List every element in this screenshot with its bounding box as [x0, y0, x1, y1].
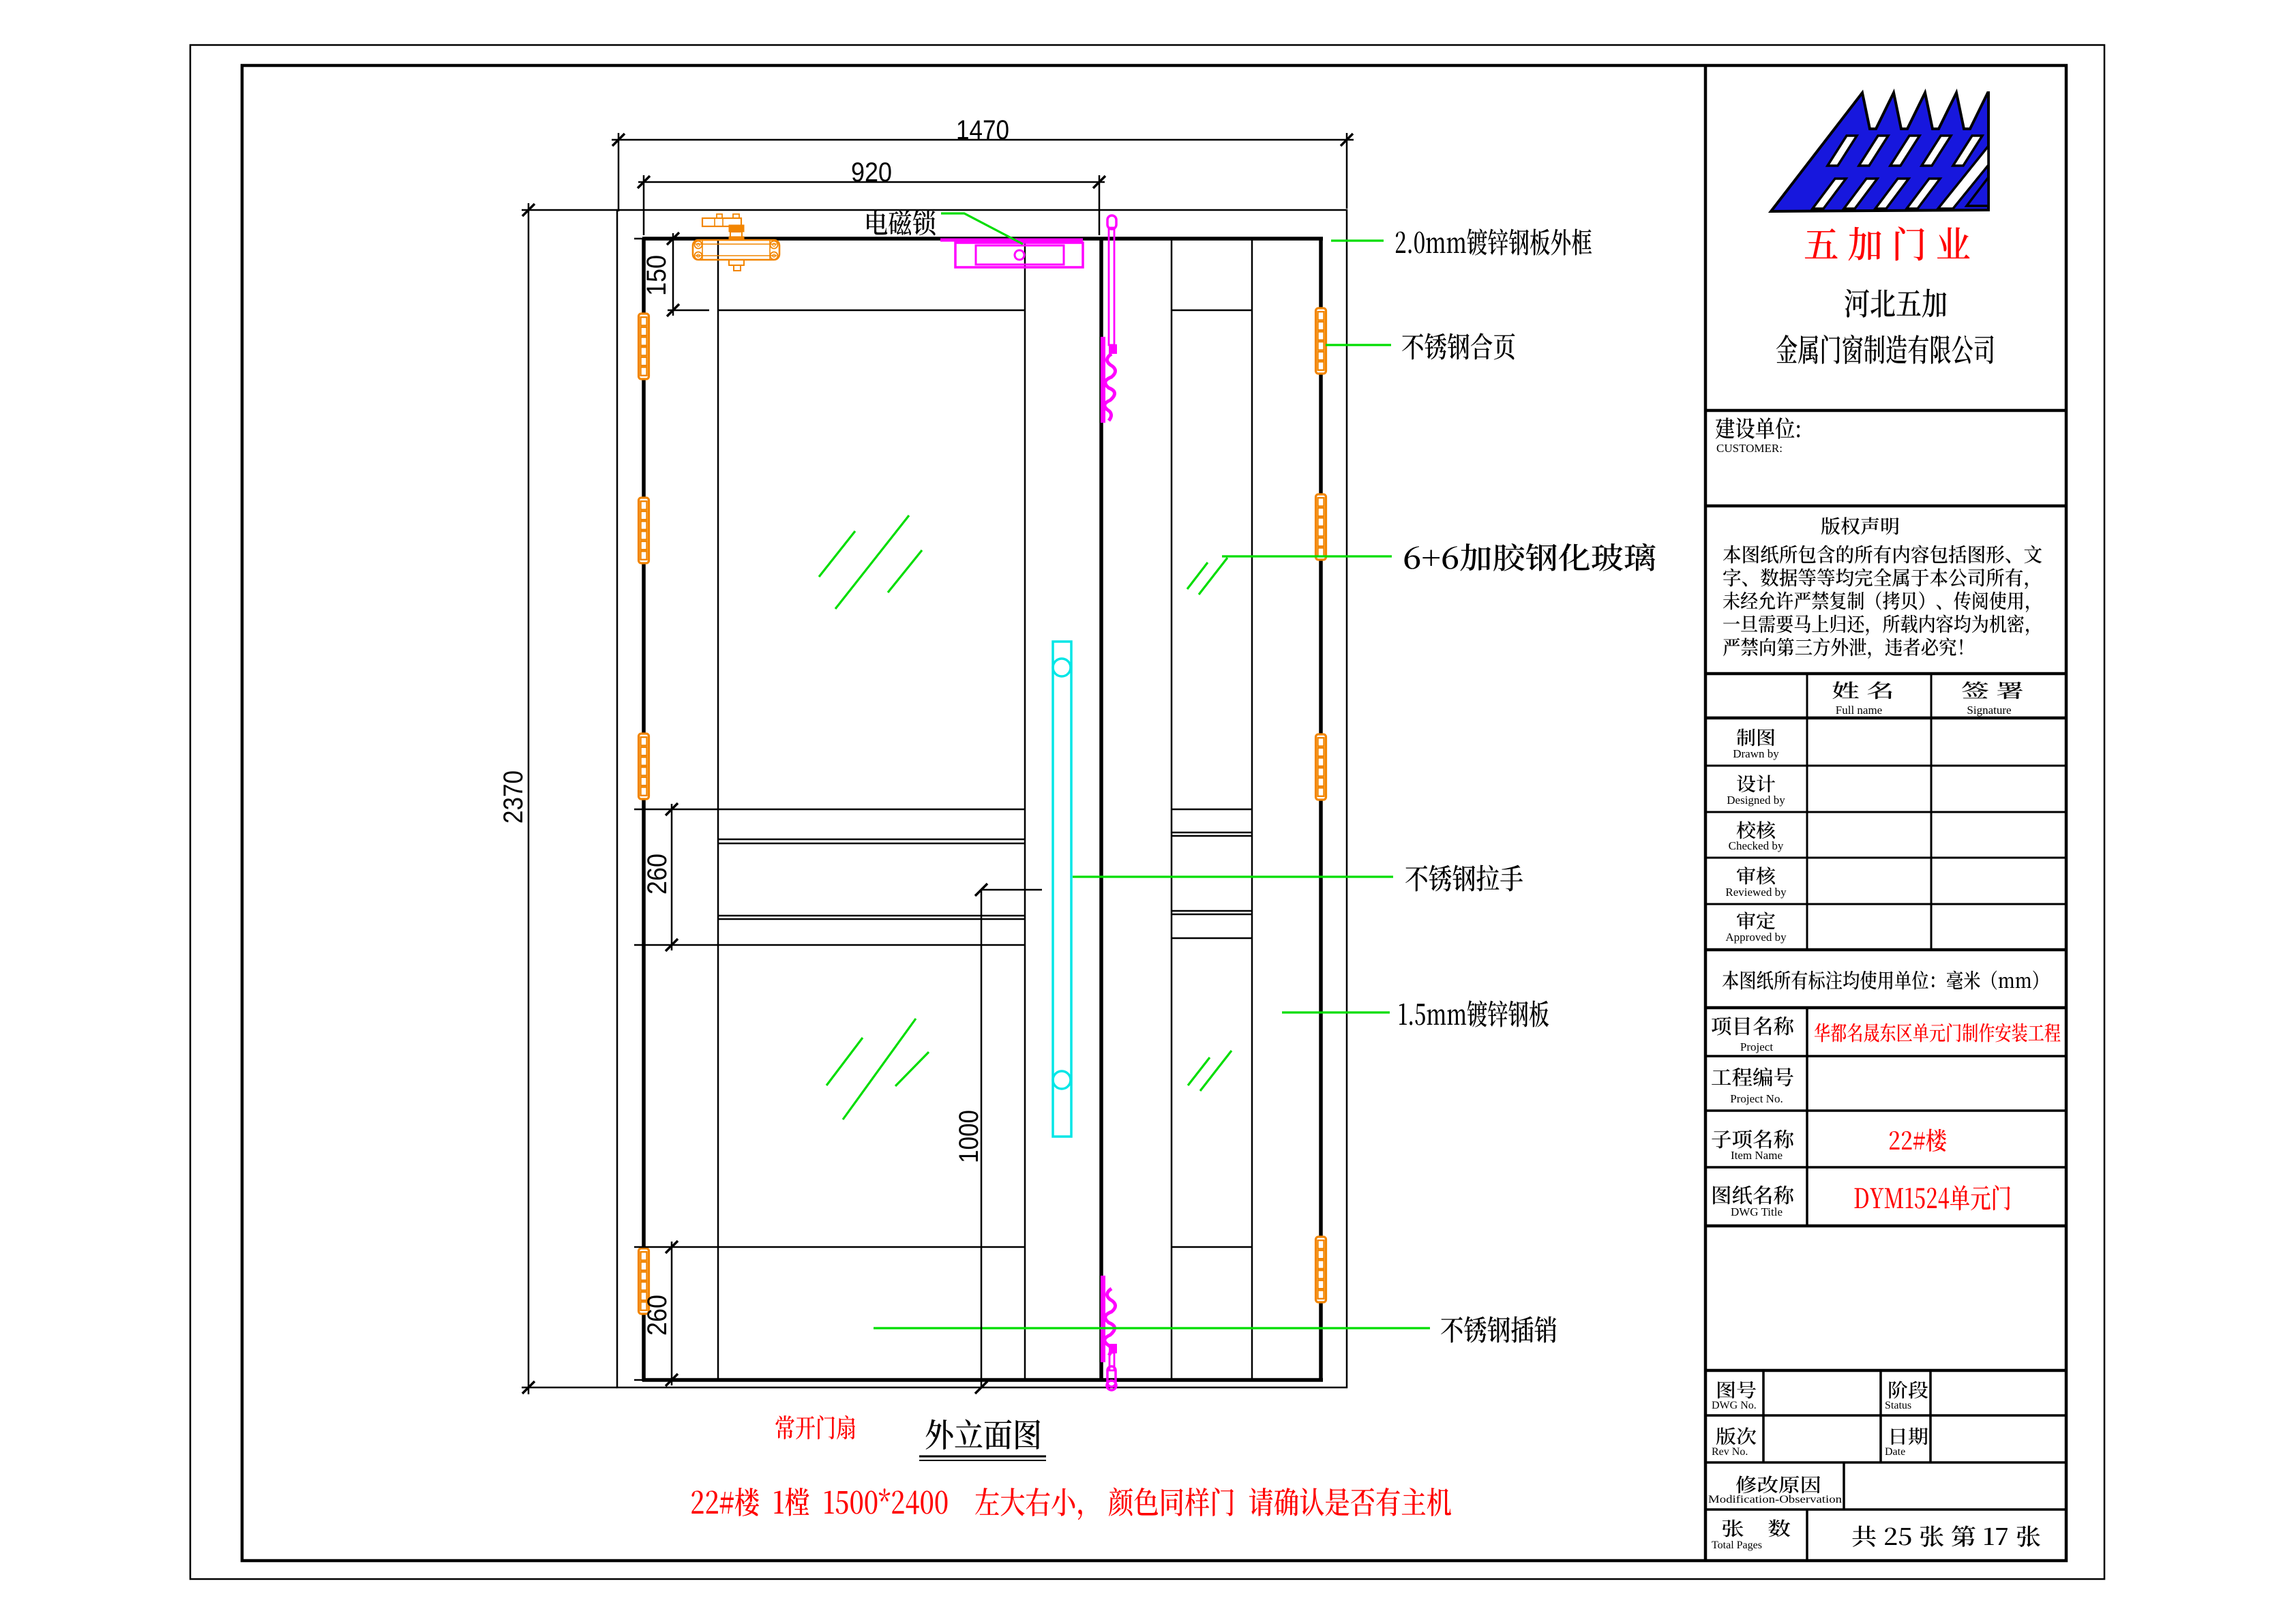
svg-text:260: 260 [642, 854, 672, 895]
svg-text:DWG No.: DWG No. [1712, 1400, 1757, 1411]
svg-text:Drawn by: Drawn by [1733, 747, 1779, 760]
svg-text:Total Pages: Total Pages [1712, 1540, 1762, 1551]
svg-text:Date: Date [1885, 1446, 1905, 1458]
svg-text:DWG Title: DWG Title [1731, 1205, 1783, 1218]
svg-text:Item Name: Item Name [1731, 1149, 1783, 1162]
svg-text:150: 150 [642, 255, 672, 296]
svg-text:Checked by: Checked by [1729, 839, 1784, 852]
svg-text:Reviewed by: Reviewed by [1725, 886, 1787, 899]
svg-text:1000: 1000 [954, 1110, 984, 1163]
svg-text:CUSTOMER:: CUSTOMER: [1716, 442, 1783, 455]
svg-text:Signature: Signature [1967, 704, 2011, 717]
svg-text:Status: Status [1885, 1400, 1911, 1411]
svg-text:260: 260 [642, 1295, 672, 1336]
svg-text:Full name: Full name [1836, 704, 1882, 717]
svg-text:Modification-Observation: Modification-Observation [1708, 1494, 1842, 1505]
svg-text:Project: Project [1740, 1040, 1773, 1053]
svg-text:Approved by: Approved by [1725, 931, 1787, 944]
svg-text:Project No.: Project No. [1730, 1092, 1783, 1105]
svg-text:Rev No.: Rev No. [1712, 1446, 1748, 1458]
svg-text:920: 920 [851, 157, 892, 187]
svg-text:Designed by: Designed by [1727, 794, 1785, 807]
svg-text:2370: 2370 [498, 770, 528, 824]
svg-text:1470: 1470 [956, 115, 1009, 145]
